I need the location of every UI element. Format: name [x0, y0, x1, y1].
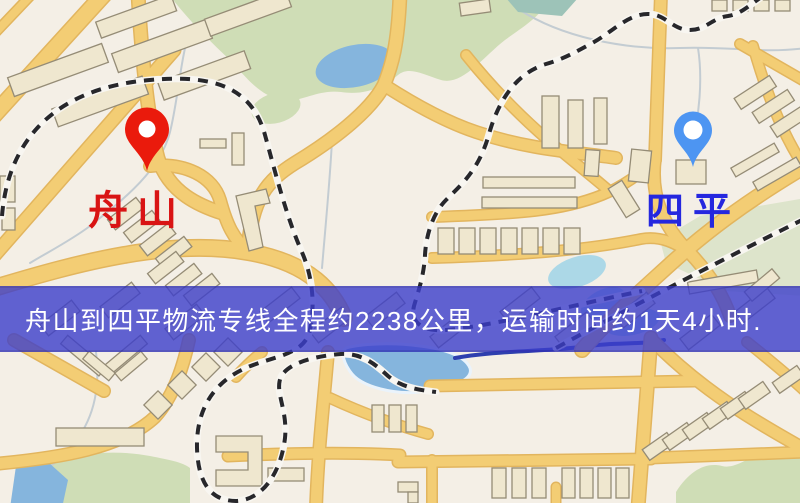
destination-label: 四平: [646, 180, 740, 235]
route-info-text: 舟山到四平物流专线全程约2238公里，运输时间约1天4小时.: [0, 301, 762, 338]
origin-pin-icon[interactable]: [124, 107, 170, 173]
origin-label: 舟山: [88, 178, 186, 236]
destination-pin-icon[interactable]: [673, 111, 713, 169]
map-canvas: [0, 0, 800, 503]
route-info-banner: 舟山到四平物流专线全程约2238公里，运输时间约1天4小时.: [0, 286, 800, 352]
map[interactable]: 舟山 四平 舟山到四平物流专线全程约2238公里，运输时间约1天4小时.: [0, 0, 800, 503]
